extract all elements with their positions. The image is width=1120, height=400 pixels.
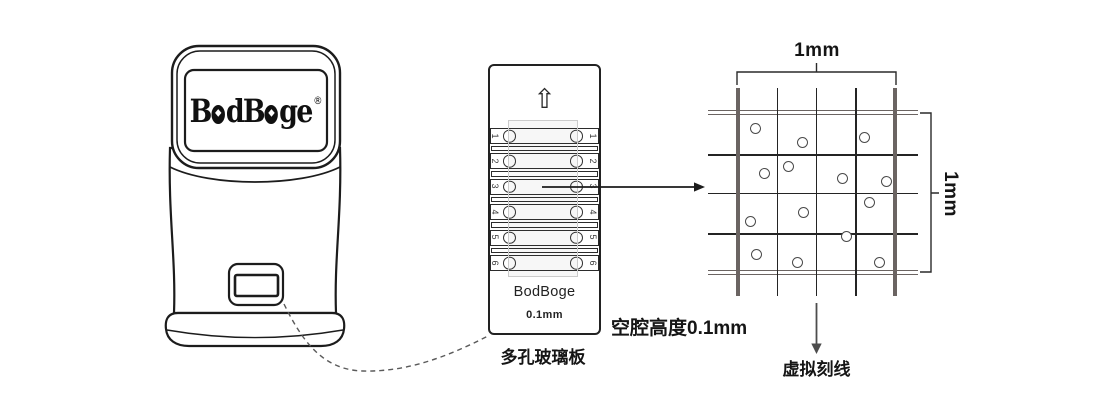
grid-thick-hline: [708, 110, 918, 115]
grid-thick-hline: [708, 270, 918, 275]
cell-dot: [798, 207, 809, 218]
cell-dot: [859, 132, 870, 143]
row-number-right: 4: [588, 207, 598, 217]
porous-glass-slide: ⇧ 112233445566 BodBoge 0.1mm: [488, 64, 601, 335]
row-number-left: 4: [490, 207, 500, 217]
row-number-right: 1: [588, 131, 598, 141]
virtual-gridlines-label: 虚拟刻线: [754, 355, 879, 380]
device-screen-logo: B◆dB◆ge®: [186, 70, 327, 151]
row-number-left: 3: [490, 181, 500, 191]
grid-thick-vline: [736, 88, 740, 296]
grid-thick-vline: [893, 88, 897, 296]
device-base-lip: [167, 330, 343, 338]
logo-diamond-o-icon: ◆: [212, 105, 225, 124]
row-number-left: 1: [490, 131, 500, 141]
cover-glass-overlay: [508, 120, 578, 277]
brand-logo: B◆dB◆ge®: [190, 95, 323, 127]
cell-dot: [864, 197, 875, 208]
row-number-left: 6: [490, 258, 500, 268]
cell-dot: [783, 161, 794, 172]
device-body: [170, 148, 341, 313]
grid-thin-vline: [855, 88, 857, 296]
illustration-canvas: B◆dB◆ge® ⇧ 112233445566 BodBoge 0.1mm 多孔…: [0, 0, 1120, 400]
right-dimension-bracket: [920, 113, 939, 272]
row-number-right: 3: [588, 181, 598, 191]
slide-brand-text: BodBoge: [490, 284, 599, 300]
row-number-right: 6: [588, 258, 598, 268]
virtual-gridline-arrowhead-icon: [811, 344, 821, 355]
row-number-right: 2: [588, 156, 598, 166]
cell-dot: [874, 257, 885, 268]
cell-dot: [750, 123, 761, 134]
grid-thin-hline: [708, 193, 918, 195]
registered-trademark-icon: ®: [314, 94, 323, 107]
device-base: [166, 313, 344, 346]
row-number-right: 5: [588, 232, 598, 242]
slide-caption-label: 多孔玻璃板: [478, 343, 608, 368]
cell-dot: [841, 231, 852, 242]
grid-thin-vline: [816, 88, 818, 296]
grid-height-dimension-label: 1mm: [939, 163, 961, 225]
row-number-left: 2: [490, 156, 500, 166]
cell-dot: [881, 176, 892, 187]
slide-slot-outer: [229, 264, 283, 305]
slide-to-grid-arrowhead-icon: [694, 182, 705, 191]
cell-dot: [745, 216, 756, 227]
slot-to-slide-dashed-connector: [284, 304, 488, 371]
slide-cavity-spec: 0.1mm: [490, 309, 599, 321]
grid-thin-vline: [777, 88, 779, 296]
cell-dot: [751, 249, 762, 260]
slide-slot-inner: [235, 275, 278, 296]
cell-dot: [759, 168, 770, 179]
device-shoulder-curve: [170, 167, 340, 182]
grid-thin-hline: [708, 154, 918, 156]
grid-thin-hline: [708, 233, 918, 235]
insert-direction-up-arrow-icon: ⇧: [490, 86, 599, 113]
logo-diamond-o-icon: ◆: [265, 105, 278, 124]
cell-dot: [837, 173, 848, 184]
cell-dot: [797, 137, 808, 148]
cell-dot: [792, 257, 803, 268]
row-number-left: 5: [490, 232, 500, 242]
grid-width-dimension-label: 1mm: [782, 40, 852, 62]
top-dimension-bracket: [737, 63, 896, 85]
cavity-height-label: 空腔高度0.1mm: [611, 313, 747, 340]
